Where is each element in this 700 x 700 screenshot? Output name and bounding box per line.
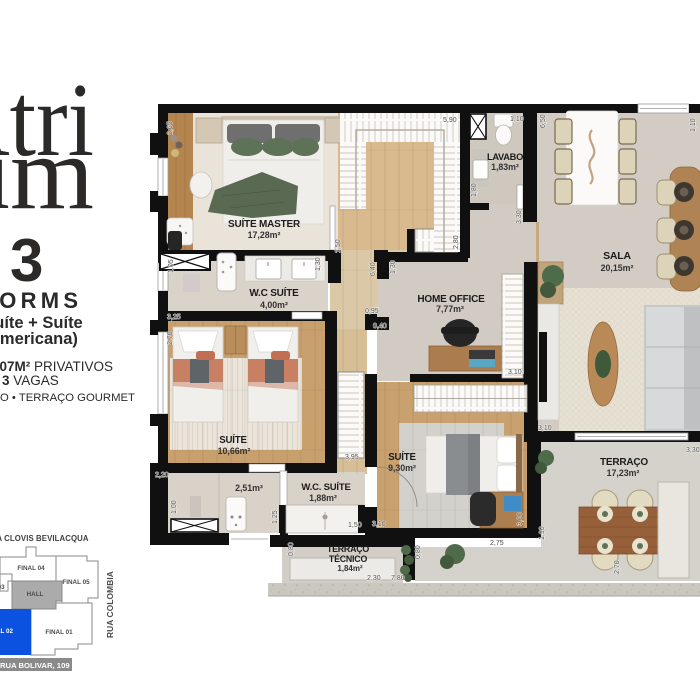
svg-text:2,30: 2,30 — [367, 575, 381, 582]
svg-text:1,10: 1,10 — [510, 116, 524, 123]
svg-text:6,40: 6,40 — [370, 262, 377, 276]
svg-text:2,70: 2,70 — [614, 560, 621, 574]
svg-text:FINAL 05: FINAL 05 — [62, 579, 90, 586]
svg-text:TERRAÇO: TERRAÇO — [327, 544, 369, 554]
svg-text:1,30: 1,30 — [315, 257, 322, 271]
svg-text:FINAL 01: FINAL 01 — [45, 629, 73, 636]
svg-text:3,10: 3,10 — [508, 369, 522, 376]
svg-text:Americana): Americana) — [0, 330, 78, 348]
svg-text:2,80: 2,80 — [453, 235, 460, 249]
svg-text:0,80: 0,80 — [288, 542, 295, 556]
svg-text:1,50: 1,50 — [348, 522, 362, 529]
svg-text:SUÍTE MASTER: SUÍTE MASTER — [228, 217, 301, 230]
svg-text:6,50: 6,50 — [540, 114, 547, 128]
svg-text:3,10: 3,10 — [538, 425, 552, 432]
svg-text:HALL: HALL — [27, 591, 44, 598]
svg-text:2,51m²: 2,51m² — [235, 483, 263, 493]
svg-text:TÉCNICO: TÉCNICO — [329, 554, 368, 564]
svg-text:17,28m²: 17,28m² — [248, 230, 281, 240]
svg-text:0,80: 0,80 — [415, 545, 422, 559]
svg-text:1,90: 1,90 — [539, 526, 546, 540]
svg-text:1,84m²: 1,84m² — [337, 564, 363, 573]
svg-text:0,40: 0,40 — [373, 323, 387, 330]
svg-text:3,30: 3,30 — [686, 447, 700, 454]
svg-text:3: 3 — [10, 227, 43, 294]
svg-text:5,90: 5,90 — [443, 117, 457, 124]
svg-text:2,20: 2,20 — [155, 472, 169, 479]
svg-text:2,75: 2,75 — [490, 540, 504, 547]
svg-text:um: um — [0, 114, 94, 231]
svg-text:1,25: 1,25 — [272, 510, 279, 524]
svg-text:RUA CLOVIS BEVILACQUA: RUA CLOVIS BEVILACQUA — [0, 534, 89, 543]
svg-text:RUA COLOMBIA: RUA COLOMBIA — [105, 571, 115, 638]
svg-text:3,25: 3,25 — [167, 314, 181, 321]
svg-text:SALA: SALA — [603, 250, 631, 262]
svg-text:TERRAÇO: TERRAÇO — [600, 457, 648, 468]
svg-text:7,77m²: 7,77m² — [436, 304, 464, 314]
svg-text:O • TERRAÇO GOURMET: O • TERRAÇO GOURMET — [0, 392, 135, 404]
svg-text:3,10: 3,10 — [372, 521, 386, 528]
svg-text:3,30: 3,30 — [516, 210, 523, 224]
svg-text:3 VAGAS: 3 VAGAS — [2, 373, 59, 388]
svg-text:107M² PRIVATIVOS: 107M² PRIVATIVOS — [0, 359, 113, 374]
svg-text:2,70: 2,70 — [167, 331, 174, 345]
svg-text:3,95: 3,95 — [345, 454, 359, 461]
svg-text:DORMS: DORMS — [0, 288, 82, 313]
svg-text:1,30: 1,30 — [390, 260, 397, 274]
svg-text:4,00m²: 4,00m² — [260, 300, 288, 310]
svg-text:W.C. SUÍTE: W.C. SUÍTE — [301, 482, 350, 493]
svg-text:F. 03: F. 03 — [0, 584, 5, 591]
svg-text:0,95: 0,95 — [365, 308, 379, 315]
svg-text:SUÍTE: SUÍTE — [219, 435, 247, 446]
svg-text:1,88m²: 1,88m² — [309, 493, 337, 503]
svg-text:1,00: 1,00 — [171, 500, 178, 514]
svg-text:1,50: 1,50 — [335, 239, 342, 253]
svg-text:10,66m²: 10,66m² — [218, 446, 251, 456]
svg-text:1,83m²: 1,83m² — [491, 162, 519, 172]
svg-text:AL 02: AL 02 — [0, 628, 14, 635]
svg-text:1,10: 1,10 — [690, 118, 697, 132]
svg-text:LAVABO: LAVABO — [487, 152, 523, 162]
svg-text:3,00: 3,00 — [517, 512, 524, 526]
svg-text:1,80: 1,80 — [471, 183, 478, 197]
svg-text:2,65: 2,65 — [167, 121, 174, 135]
svg-text:FINAL 04: FINAL 04 — [17, 565, 45, 572]
svg-text:1,05: 1,05 — [168, 259, 175, 273]
svg-text:17,23m²: 17,23m² — [607, 468, 640, 478]
svg-text:RUA BOLIVAR, 109: RUA BOLIVAR, 109 — [0, 661, 70, 670]
svg-text:7,80: 7,80 — [391, 575, 405, 582]
svg-text:W.C SUÍTE: W.C SUÍTE — [249, 286, 299, 299]
svg-text:20,15m²: 20,15m² — [601, 263, 634, 273]
svg-text:SUÍTE: SUÍTE — [388, 452, 416, 463]
svg-text:9,30m²: 9,30m² — [388, 463, 416, 473]
